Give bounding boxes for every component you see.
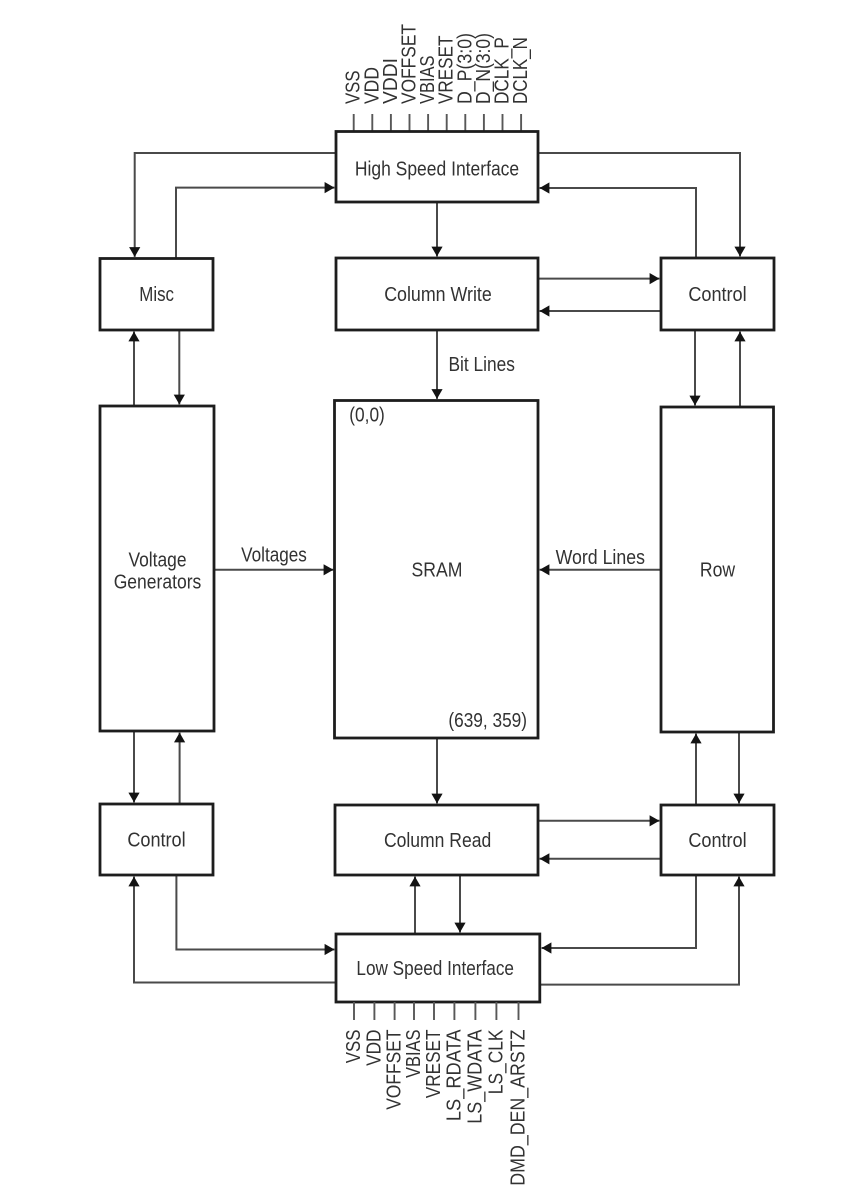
svg-text:VRESET: VRESET [423,1030,445,1099]
svg-text:SRAM: SRAM [412,560,463,582]
svg-text:(0,0): (0,0) [349,405,385,427]
svg-text:LS_RDATA: LS_RDATA [443,1029,465,1121]
svg-text:Generators: Generators [114,572,202,594]
svg-text:DCLK_N: DCLK_N [510,37,532,104]
svg-text:VSS: VSS [343,1030,365,1064]
svg-text:Control: Control [688,830,746,852]
svg-text:High Speed Interface: High Speed Interface [355,159,519,181]
svg-text:Voltage: Voltage [128,550,186,572]
svg-text:DMD_DEN_ARSTZ: DMD_DEN_ARSTZ [508,1030,530,1186]
svg-text:Voltages: Voltages [241,545,307,567]
svg-text:Misc: Misc [139,284,174,306]
svg-text:Row: Row [700,560,736,582]
svg-text:(639, 359): (639, 359) [448,710,527,732]
svg-text:Column Write: Column Write [384,284,492,306]
svg-text:Word Lines: Word Lines [556,547,645,569]
svg-text:Control: Control [688,284,746,306]
svg-text:VBIAS: VBIAS [403,1030,425,1079]
svg-text:Control: Control [127,830,185,852]
svg-text:LS_CLK: LS_CLK [485,1029,507,1094]
svg-text:LS_WDATA: LS_WDATA [464,1029,486,1124]
svg-text:Low Speed Interface: Low Speed Interface [356,958,514,980]
svg-text:Column Read: Column Read [384,830,491,852]
svg-text:Bit Lines: Bit Lines [449,354,515,376]
svg-text:VDD: VDD [363,1030,385,1066]
